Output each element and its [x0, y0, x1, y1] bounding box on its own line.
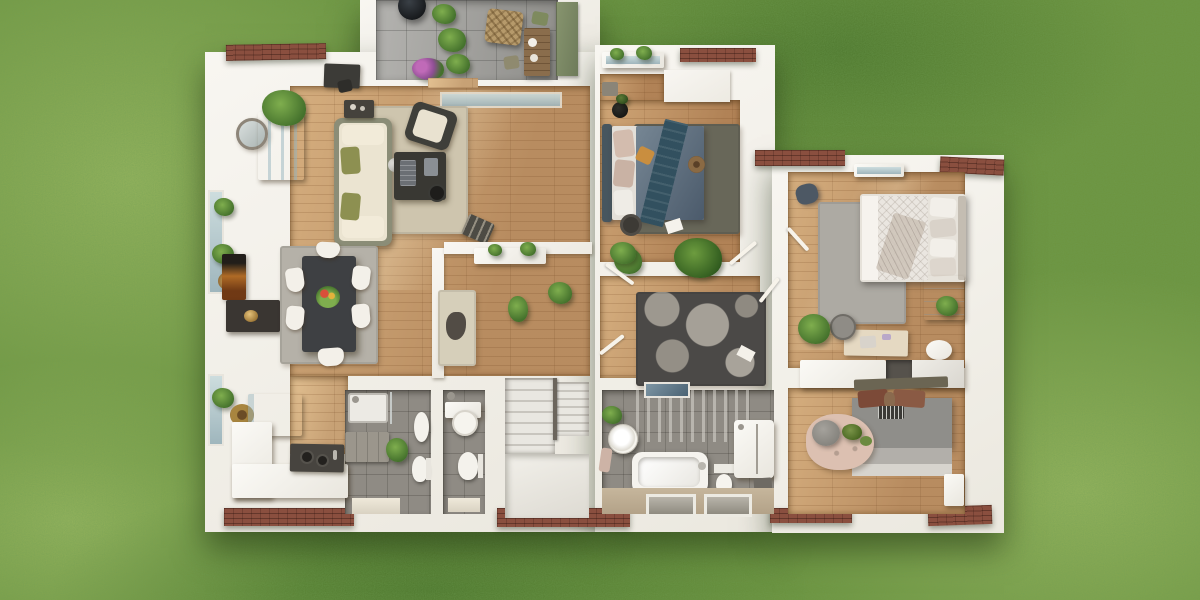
- master-pouf: [926, 340, 952, 360]
- outdoor-dining-table: [524, 28, 550, 76]
- brick-edge-right-top: [755, 150, 845, 166]
- flower-centerpiece: [316, 286, 340, 308]
- circle-pattern-rug: [636, 292, 766, 386]
- shower-cabin-door-line: [756, 424, 758, 474]
- bath3-plant: [602, 406, 622, 424]
- hall-plant-2: [548, 282, 572, 304]
- desk-accessory: [882, 334, 891, 340]
- bathtub-basin: [638, 457, 700, 487]
- kids-dresser: [944, 474, 964, 506]
- floor-window-1: [646, 494, 696, 517]
- shower-head-1: [352, 396, 359, 403]
- hat-on-bed: [688, 156, 705, 173]
- terrace-dish-2: [530, 54, 538, 62]
- rattan-pouf: [484, 8, 524, 46]
- brick-edge-bedroom1: [680, 48, 756, 62]
- black-plant-pot: [612, 102, 628, 118]
- bed1-pillow-3: [613, 189, 634, 215]
- kitchen-faucet: [333, 450, 337, 460]
- master-floor-plant: [798, 314, 830, 344]
- window-plant-1: [214, 198, 234, 216]
- window-bay-2: [208, 374, 224, 446]
- console-plant-1: [488, 244, 502, 256]
- bath2-sink: [452, 410, 478, 436]
- console-plant-2: [520, 242, 536, 256]
- bath2-cistern: [478, 454, 483, 478]
- desk-chair: [830, 314, 856, 340]
- gold-bowl: [244, 310, 258, 322]
- dining-chair-4: [351, 303, 371, 328]
- hall-large-plant: [262, 90, 306, 126]
- black-pot-sprigs: [616, 94, 628, 104]
- stair-flight-left: [505, 378, 555, 454]
- terrace-plant-2: [438, 28, 466, 52]
- bath1-sink: [414, 412, 429, 442]
- floor-plan-scene: [0, 0, 1200, 600]
- desk-laptop: [860, 335, 877, 348]
- kids-pattern-cushion: [878, 406, 904, 419]
- sofa-olive-cushion-1: [340, 146, 361, 174]
- kids-bed-foot: [852, 464, 952, 476]
- terrace-flower-box: [412, 58, 444, 80]
- master-pillow-3: [929, 238, 956, 258]
- cooktop-pan-1: [300, 450, 314, 464]
- bath2-doorway: [448, 498, 480, 512]
- shower-head-3: [738, 424, 744, 430]
- stair-flight-right: [557, 382, 589, 436]
- bath1-doorway: [352, 498, 400, 514]
- bedroom1-stool: [620, 214, 642, 236]
- stair-handrail: [553, 378, 557, 440]
- kids-toy-turtle: [860, 436, 872, 446]
- brick-edge-top-left: [226, 43, 326, 61]
- vessel-sink: [608, 424, 638, 454]
- fireplace-artwork: [222, 254, 246, 300]
- terrace-plant-3: [446, 54, 470, 74]
- master-pillow-2: [929, 218, 957, 239]
- kids-toy-pile: [842, 424, 862, 440]
- bath2-toilet: [458, 452, 478, 480]
- bath1-cistern: [426, 458, 431, 480]
- table-speaker: [428, 184, 446, 202]
- master-window-glass: [857, 167, 901, 174]
- terrace-plant-1: [432, 4, 456, 24]
- sofa-side-table: [344, 100, 374, 118]
- side-table-cup-2: [360, 106, 365, 111]
- bath3-toilet-tank: [714, 464, 734, 473]
- sofa-headrest-top: [342, 125, 384, 145]
- master-pillow-1: [929, 197, 957, 218]
- window-plant-3: [212, 388, 234, 408]
- bed1-headboard: [602, 124, 612, 222]
- hall-plant-3: [508, 296, 528, 322]
- bedroom1-floor-plant: [610, 242, 636, 264]
- shower-head-2: [447, 392, 455, 400]
- master-pillow-4: [929, 257, 956, 277]
- master-headboard: [958, 196, 966, 280]
- bedroom1-window-plant-2: [636, 46, 652, 60]
- terrace-seat-cushion-1: [503, 55, 520, 70]
- dresser-plant: [936, 296, 958, 316]
- terrace-entry-door: [556, 2, 578, 76]
- bathroom-skylight: [644, 382, 690, 398]
- bedroom1-window-plant-1: [610, 48, 624, 60]
- terrace-door-sill: [428, 78, 478, 88]
- floor-window-2: [704, 494, 752, 517]
- coffee-table-book: [424, 158, 438, 176]
- bed1-pillow-2: [613, 159, 636, 188]
- brick-edge-bottom-left: [224, 508, 354, 526]
- stair-lower-landing: [505, 454, 589, 518]
- bedroom1-side-stand: [602, 82, 618, 96]
- bed1-pillow-1: [612, 129, 635, 158]
- bathtub-faucet: [698, 462, 706, 470]
- coffee-table-tray: [400, 160, 416, 186]
- kids-pouf: [812, 420, 840, 446]
- sofa-olive-cushion-2: [340, 192, 361, 221]
- shower-glass-1: [390, 392, 392, 424]
- terrace-dish-1: [528, 38, 537, 47]
- terrace-seat-cushion-2: [531, 11, 549, 27]
- bedroom1-corner-wall: [664, 70, 730, 102]
- cooktop-pan-2: [316, 454, 329, 467]
- side-table-cup-1: [350, 104, 356, 110]
- hall-monstera: [674, 238, 722, 278]
- bath1-plant: [386, 438, 408, 462]
- bath1-bench: [345, 432, 389, 462]
